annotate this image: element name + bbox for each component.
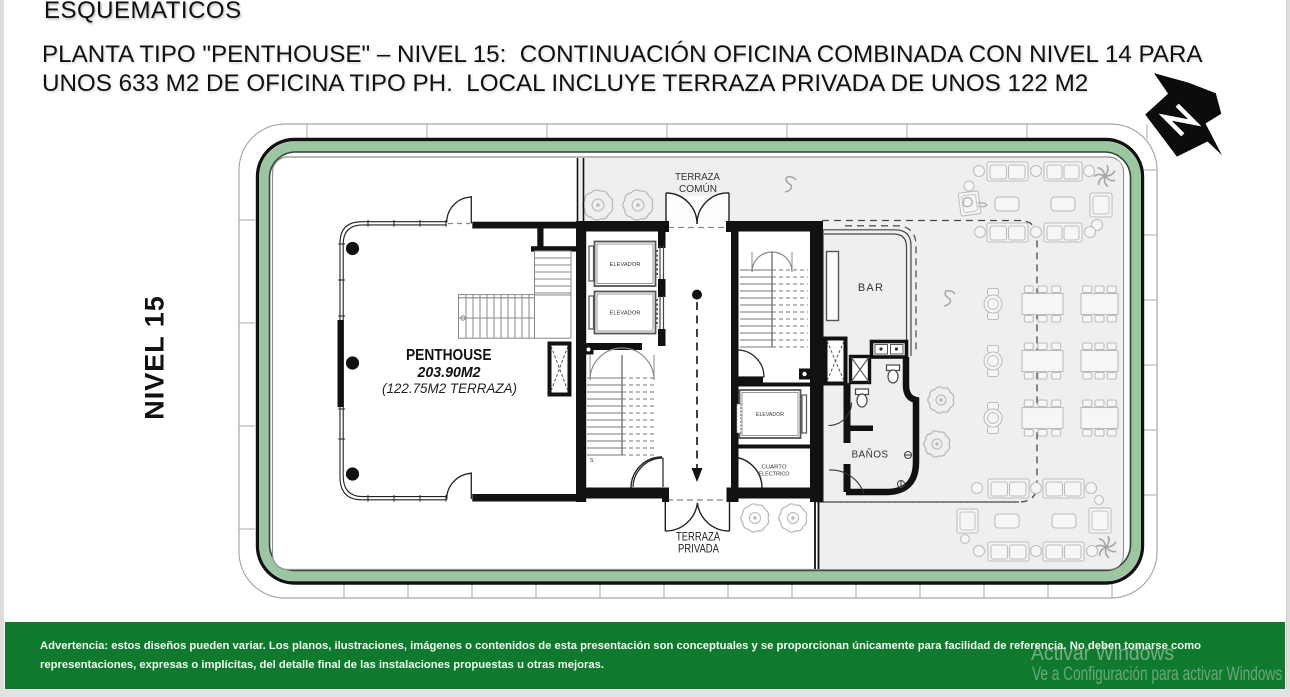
svg-text:ELEVADOR: ELEVADOR [610,311,641,317]
svg-text:TERRAZA: TERRAZA [675,171,720,183]
svg-text:COMÚN: COMÚN [679,182,717,195]
svg-text:ELEVADOR: ELEVADOR [756,412,784,418]
svg-text:(122.75M2 TERRAZA): (122.75M2 TERRAZA) [382,380,517,396]
svg-text:ELEVADOR: ELEVADOR [610,262,641,268]
svg-text:ELÉCTRICO: ELÉCTRICO [759,471,790,478]
svg-text:TERRAZA: TERRAZA [676,532,720,544]
svg-text:PENTHOUSE: PENTHOUSE [406,347,492,364]
svg-text:BAÑOS: BAÑOS [851,448,888,461]
svg-text:PRIVADA: PRIVADA [678,544,719,556]
svg-text:203.90M2: 203.90M2 [417,365,481,381]
svg-text:CUARTO: CUARTO [762,465,787,471]
svg-text:BAR: BAR [858,282,884,294]
